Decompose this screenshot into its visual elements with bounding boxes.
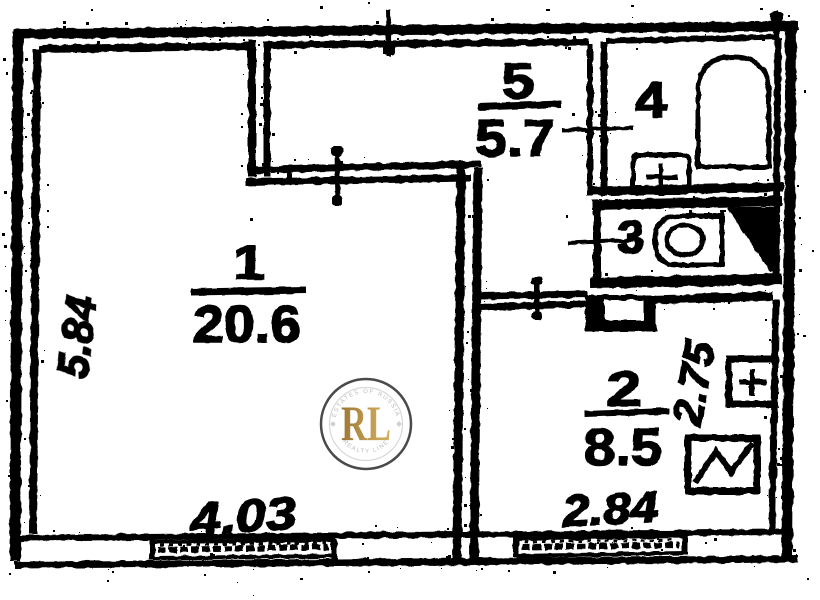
svg-text:2.75: 2.75 — [663, 337, 724, 430]
svg-text:8.5: 8.5 — [584, 419, 662, 477]
svg-text:20.6: 20.6 — [193, 296, 301, 354]
svg-text:1: 1 — [233, 237, 265, 290]
svg-text:3: 3 — [618, 211, 645, 263]
svg-text:2.84: 2.84 — [560, 483, 660, 537]
svg-text:4.03: 4.03 — [187, 486, 298, 545]
svg-text:5: 5 — [502, 53, 535, 109]
svg-text:5.7: 5.7 — [475, 110, 555, 168]
svg-text:2: 2 — [607, 361, 642, 417]
svg-text:5.84: 5.84 — [48, 293, 107, 380]
svg-text:RL: RL — [341, 395, 391, 451]
svg-text:4: 4 — [635, 72, 667, 128]
